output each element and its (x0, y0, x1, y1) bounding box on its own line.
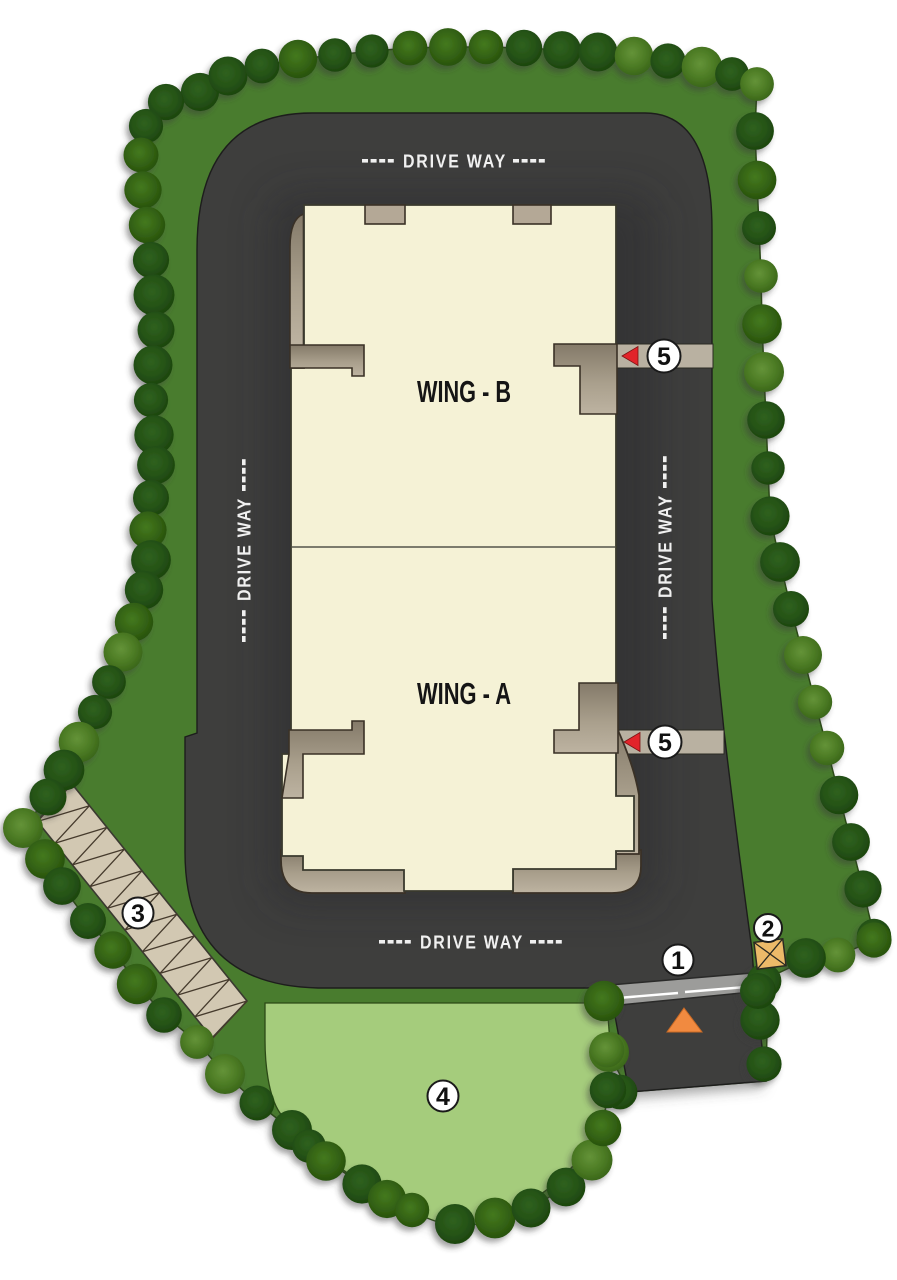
svg-text:DRIVE WAY: DRIVE WAY (235, 497, 255, 601)
svg-text:5: 5 (658, 729, 672, 757)
svg-text:1: 1 (671, 947, 685, 975)
svg-text:3: 3 (131, 900, 145, 928)
svg-text:5: 5 (657, 343, 671, 371)
svg-text:DRIVE WAY: DRIVE WAY (656, 494, 676, 598)
svg-text:WING - B: WING - B (417, 374, 511, 409)
svg-text:DRIVE WAY: DRIVE WAY (403, 152, 507, 172)
svg-text:DRIVE WAY: DRIVE WAY (420, 933, 524, 953)
svg-text:WING - A: WING - A (417, 676, 511, 711)
svg-text:2: 2 (762, 915, 775, 941)
svg-text:4: 4 (436, 1083, 450, 1111)
